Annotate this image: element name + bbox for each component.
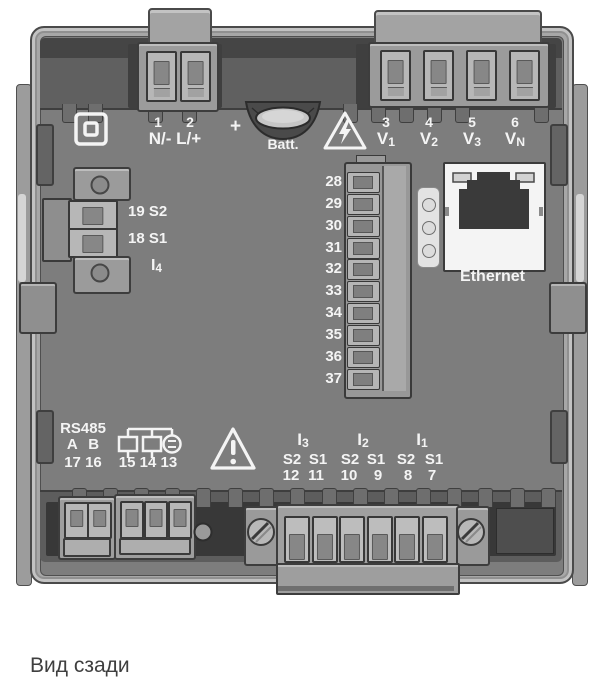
plug-terminal-10 xyxy=(339,516,365,563)
panel-notch xyxy=(36,124,54,186)
digital-io-pins: 15 14 13 xyxy=(110,454,186,471)
plug-terminal-9 xyxy=(367,516,393,563)
i3-s1-label: S1 xyxy=(304,451,332,468)
strip-number: 36 xyxy=(316,348,342,365)
led-indicator xyxy=(422,198,436,212)
screw-right xyxy=(456,517,486,547)
terminal-29 xyxy=(347,194,380,215)
terminal-37 xyxy=(347,369,380,390)
terminal-1 xyxy=(146,51,177,102)
block-lip xyxy=(63,538,111,557)
terminal-16 xyxy=(87,502,112,539)
led-indicator xyxy=(422,244,436,258)
left-panel-clip xyxy=(19,282,57,334)
voltage-input-connector xyxy=(368,42,550,108)
high-voltage-warning-icon xyxy=(322,110,368,152)
ethernet-label: Ethernet xyxy=(443,268,542,286)
voltage-label-v1: V1 xyxy=(371,129,401,149)
screw-left xyxy=(246,517,276,547)
terminal-36 xyxy=(347,347,380,368)
terminal-32 xyxy=(347,259,380,280)
panel-tab xyxy=(228,488,243,507)
pin-number-4: 4 xyxy=(416,114,442,130)
battery-label: Batt. xyxy=(259,136,307,152)
terminal-19 xyxy=(68,200,118,230)
ethernet-port xyxy=(443,162,546,272)
bottom-empty-slot xyxy=(496,508,554,554)
pin-number-5: 5 xyxy=(459,114,485,130)
aux-row-19-s2: 19 S2 xyxy=(128,203,167,220)
i2-s2-label: S2 xyxy=(336,451,364,468)
device-rear-view-diagram: 1 2 N/- L/+ + Batt. 3 4 5 6 V1 V2 V3 VN … xyxy=(0,0,602,696)
rs485-pins: 17 16 xyxy=(52,454,114,471)
terminal-28 xyxy=(347,172,380,193)
voltage-label-v2: V2 xyxy=(414,129,444,149)
terminal-13 xyxy=(168,501,192,539)
caption: Вид сзади xyxy=(30,654,130,678)
pin-number-3: 3 xyxy=(373,114,399,130)
terminal-34 xyxy=(347,303,380,324)
terminal-15 xyxy=(120,501,144,539)
i1-s2-label: S2 xyxy=(392,451,420,468)
block-lip xyxy=(119,538,191,555)
led-indicator-strip xyxy=(417,187,440,268)
strip-number: 33 xyxy=(316,282,342,299)
terminal-18 xyxy=(68,228,118,258)
panel-notch xyxy=(550,124,568,186)
right-mounting-rail xyxy=(572,84,588,586)
terminal-31 xyxy=(347,238,380,259)
power-label: N/- L/+ xyxy=(142,129,208,149)
terminal-14 xyxy=(144,501,168,539)
current-input-plug xyxy=(276,504,460,568)
aux-block-top-hole xyxy=(90,175,110,195)
right-panel-clip xyxy=(549,282,587,334)
pin-number-1: 1 xyxy=(148,114,168,130)
strip-number: 35 xyxy=(316,326,342,343)
skirt-shadow xyxy=(278,586,454,591)
terminal-3 xyxy=(380,50,411,101)
aux-block-bottom-hole xyxy=(90,263,110,283)
panel-tab xyxy=(478,488,493,507)
strip-number: 37 xyxy=(316,370,342,387)
right-rail-highlight xyxy=(576,194,584,282)
pin-number-2: 2 xyxy=(180,114,200,130)
left-rail-highlight xyxy=(18,194,26,282)
current-label-i2: I2 xyxy=(348,430,378,450)
strip-number: 29 xyxy=(316,195,342,212)
current-label-i1: I1 xyxy=(407,430,437,450)
terminal-4 xyxy=(423,50,454,101)
pin-number-6: 6 xyxy=(502,114,528,130)
rs485-terminal-block xyxy=(58,496,116,560)
led-indicator xyxy=(422,221,436,235)
general-warning-icon xyxy=(209,426,257,472)
terminal-6 xyxy=(509,50,540,101)
aux-current-label-i4: I4 xyxy=(151,257,162,275)
i3-s2-label: S2 xyxy=(278,451,306,468)
plug-terminal-12 xyxy=(284,516,310,563)
strip-number: 30 xyxy=(316,217,342,234)
current-label-i3: I3 xyxy=(288,430,318,450)
battery-plus-label: + xyxy=(230,116,241,138)
pin-number-10: 10 xyxy=(335,467,363,484)
terminal-5 xyxy=(466,50,497,101)
protection-class-ii-icon xyxy=(73,111,109,147)
pin-number-12: 12 xyxy=(277,467,305,484)
panel-tab xyxy=(259,488,274,507)
i1-s1-label: S1 xyxy=(420,451,448,468)
plug-terminal-8 xyxy=(394,516,420,563)
pin-number-9: 9 xyxy=(364,467,392,484)
strip-number: 28 xyxy=(316,173,342,190)
panel-hole xyxy=(193,522,213,542)
rj45-socket-icon xyxy=(445,164,544,265)
rs485-ab-label: A B xyxy=(54,436,112,453)
plug-terminal-11 xyxy=(312,516,338,563)
panel-tab xyxy=(541,488,556,507)
strip-number: 32 xyxy=(316,260,342,277)
plug-terminal-7 xyxy=(422,516,448,563)
power-supply-connector xyxy=(137,42,219,112)
terminal-2 xyxy=(180,51,211,102)
terminal-35 xyxy=(347,325,380,346)
strip-number: 31 xyxy=(316,239,342,256)
aux-row-18-s1: 18 S1 xyxy=(128,230,167,247)
voltage-label-v3: V3 xyxy=(457,129,487,149)
rs485-title: RS485 xyxy=(54,420,112,437)
terminal-33 xyxy=(347,281,380,302)
i2-s1-label: S1 xyxy=(362,451,390,468)
plug-bottom-skirt xyxy=(276,563,460,595)
panel-tab xyxy=(196,488,211,507)
panel-tab xyxy=(510,488,525,507)
digital-io-terminal-block xyxy=(114,494,196,560)
panel-notch xyxy=(550,410,568,464)
pin-number-11: 11 xyxy=(302,467,330,484)
terminal-30 xyxy=(347,216,380,237)
strip-number: 34 xyxy=(316,304,342,321)
pin-number-7: 7 xyxy=(418,467,446,484)
terminal-17 xyxy=(64,502,89,539)
terminal-strip-plate xyxy=(382,166,406,391)
voltage-label-vn: VN xyxy=(500,129,530,149)
